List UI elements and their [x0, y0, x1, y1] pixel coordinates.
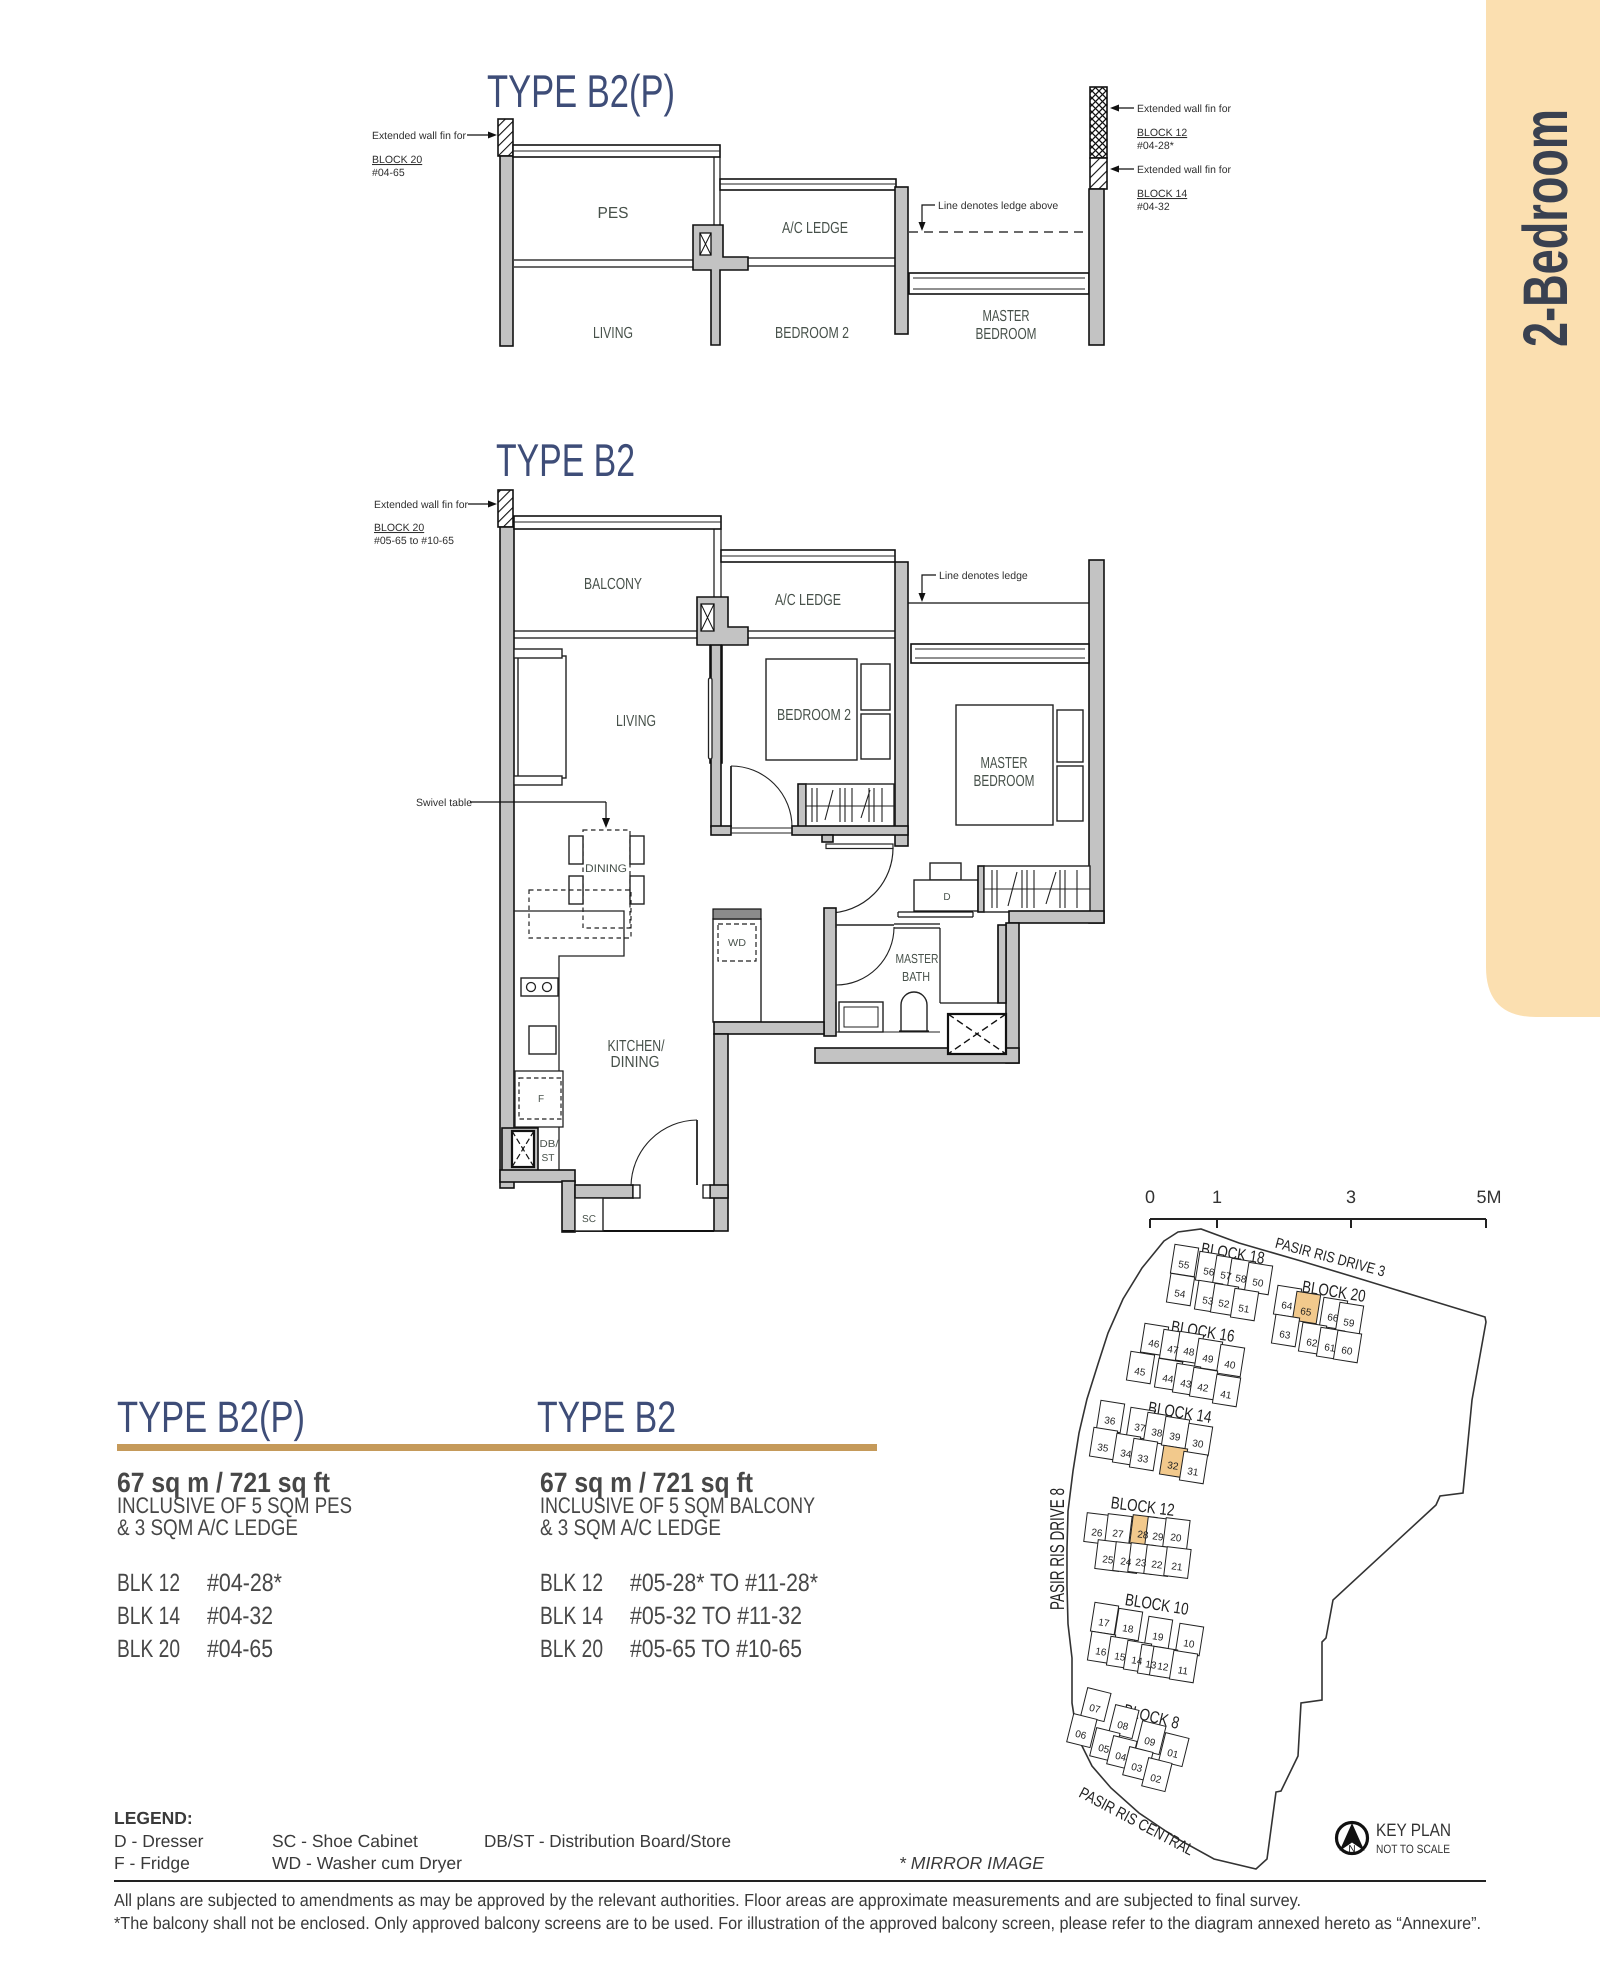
svg-text:D - Dresser: D - Dresser	[114, 1831, 204, 1851]
svg-text:27: 27	[1112, 1528, 1125, 1540]
svg-text:50: 50	[1251, 1277, 1264, 1290]
svg-text:A/C LEDGE: A/C LEDGE	[782, 220, 848, 237]
svg-text:Extended wall fin for: Extended wall fin for	[374, 499, 468, 511]
svg-text:F: F	[538, 1094, 544, 1105]
svg-text:18: 18	[1121, 1623, 1134, 1636]
svg-text:60: 60	[1340, 1345, 1353, 1358]
svg-text:58: 58	[1234, 1273, 1247, 1286]
svg-text:54: 54	[1173, 1288, 1186, 1301]
svg-text:63: 63	[1278, 1329, 1291, 1342]
svg-text:Extended wall fin for: Extended wall fin for	[1137, 164, 1231, 176]
svg-text:62: 62	[1305, 1337, 1318, 1350]
svg-text:LIVING: LIVING	[616, 713, 656, 730]
svg-text:#04-65: #04-65	[372, 167, 405, 179]
svg-text:WD: WD	[728, 938, 746, 949]
svg-text:NOT TO SCALE: NOT TO SCALE	[1376, 1842, 1450, 1856]
svg-text:37: 37	[1133, 1422, 1146, 1435]
svg-text:& 3 SQM A/C LEDGE: & 3 SQM A/C LEDGE	[540, 1515, 721, 1540]
svg-text:WD - Washer cum Dryer: WD - Washer cum Dryer	[272, 1853, 462, 1873]
svg-text:29: 29	[1152, 1531, 1165, 1543]
svg-text:53: 53	[1201, 1295, 1214, 1308]
svg-text:DINING: DINING	[585, 863, 627, 875]
svg-text:57: 57	[1219, 1270, 1232, 1283]
svg-text:51: 51	[1237, 1303, 1250, 1316]
svg-text:#04-28*: #04-28*	[1137, 140, 1174, 152]
svg-text:BLOCK 20: BLOCK 20	[374, 522, 424, 534]
svg-text:66: 66	[1326, 1312, 1339, 1325]
svg-text:D: D	[943, 892, 950, 903]
svg-text:64: 64	[1280, 1300, 1293, 1313]
svg-text:SC - Shoe Cabinet: SC - Shoe Cabinet	[272, 1831, 418, 1851]
svg-text:47: 47	[1166, 1344, 1179, 1357]
svg-text:48: 48	[1182, 1346, 1195, 1359]
svg-text:39: 39	[1168, 1431, 1181, 1444]
svg-text:PASIR RIS CENTRAL: PASIR RIS CENTRAL	[1076, 1785, 1196, 1860]
svg-text:12: 12	[1156, 1661, 1169, 1674]
svg-text:DB/: DB/	[540, 1139, 559, 1150]
svg-text:TYPE B2(P): TYPE B2(P)	[117, 1393, 305, 1442]
svg-text:15: 15	[1113, 1651, 1126, 1664]
svg-text:*The balcony shall not be encl: *The balcony shall not be enclosed. Only…	[114, 1913, 1481, 1933]
svg-text:MASTER: MASTER	[896, 951, 939, 966]
svg-text:BALCONY: BALCONY	[584, 576, 642, 593]
svg-text:BEDROOM 2: BEDROOM 2	[777, 707, 851, 724]
svg-text:BLK 14: BLK 14	[540, 1602, 603, 1630]
svg-text:20: 20	[1170, 1532, 1183, 1544]
svg-text:#05-28* TO #11-28*: #05-28* TO #11-28*	[630, 1569, 818, 1597]
svg-text:#05-65 to #10-65: #05-65 to #10-65	[374, 535, 454, 547]
svg-text:TYPE B2: TYPE B2	[537, 1393, 676, 1442]
svg-text:40: 40	[1223, 1359, 1236, 1372]
svg-text:Line denotes ledge: Line denotes ledge	[939, 570, 1028, 582]
svg-text:1: 1	[1212, 1187, 1222, 1207]
svg-text:56: 56	[1202, 1266, 1215, 1279]
svg-text:A/C LEDGE: A/C LEDGE	[775, 592, 841, 609]
svg-text:59: 59	[1342, 1317, 1355, 1330]
svg-text:Extended wall fin for: Extended wall fin for	[1137, 103, 1231, 115]
svg-text:BLK 14: BLK 14	[117, 1602, 180, 1630]
svg-text:#04-65: #04-65	[207, 1635, 273, 1663]
svg-text:5M: 5M	[1476, 1187, 1501, 1207]
svg-text:PASIR RIS DRIVE 8: PASIR RIS DRIVE 8	[1047, 1488, 1069, 1610]
svg-text:11: 11	[1177, 1665, 1189, 1678]
svg-text:TYPE B2: TYPE B2	[496, 434, 635, 486]
svg-text:F - Fridge: F - Fridge	[114, 1853, 190, 1873]
svg-text:#05-65 TO #10-65: #05-65 TO #10-65	[630, 1635, 802, 1663]
svg-text:KEY PLAN: KEY PLAN	[1376, 1820, 1451, 1840]
svg-text:DB/ST - Distribution Board/Sto: DB/ST - Distribution Board/Store	[484, 1831, 731, 1851]
svg-text:#04-32: #04-32	[207, 1602, 273, 1630]
svg-text:MASTER: MASTER	[981, 755, 1028, 772]
svg-text:BLOCK 14: BLOCK 14	[1137, 188, 1187, 200]
svg-text:65: 65	[1299, 1306, 1312, 1319]
svg-text:43: 43	[1179, 1378, 1192, 1391]
svg-text:31: 31	[1186, 1466, 1199, 1479]
svg-text:BLK 20: BLK 20	[540, 1635, 603, 1663]
svg-text:BEDROOM 2: BEDROOM 2	[775, 325, 849, 342]
svg-text:KITCHEN/: KITCHEN/	[608, 1038, 665, 1055]
svg-text:21: 21	[1171, 1561, 1184, 1573]
svg-text:0: 0	[1145, 1187, 1155, 1207]
svg-text:41: 41	[1219, 1389, 1232, 1402]
svg-text:52: 52	[1217, 1298, 1230, 1311]
svg-text:BLOCK 12: BLOCK 12	[1137, 127, 1187, 139]
svg-text:17: 17	[1097, 1617, 1110, 1630]
svg-text:BATH: BATH	[902, 969, 930, 984]
svg-text:28: 28	[1137, 1529, 1150, 1541]
svg-text:2-Bedroom: 2-Bedroom	[1511, 109, 1581, 347]
svg-text:23: 23	[1135, 1557, 1148, 1569]
svg-text:#04-32: #04-32	[1137, 201, 1170, 213]
svg-text:46: 46	[1147, 1338, 1160, 1351]
svg-text:Extended wall fin for: Extended wall fin for	[372, 130, 466, 142]
svg-text:26: 26	[1091, 1527, 1104, 1539]
svg-text:42: 42	[1196, 1382, 1209, 1395]
svg-text:PES: PES	[598, 205, 629, 222]
svg-text:N: N	[1348, 1844, 1355, 1855]
svg-text:BLK 12: BLK 12	[117, 1569, 180, 1597]
svg-text:35: 35	[1096, 1442, 1109, 1455]
svg-text:#04-28*: #04-28*	[207, 1569, 282, 1597]
svg-text:All plans are subjected to ame: All plans are subjected to amendments as…	[114, 1890, 1301, 1910]
svg-text:SC: SC	[582, 1214, 596, 1225]
svg-text:& 3 SQM A/C LEDGE: & 3 SQM A/C LEDGE	[117, 1515, 298, 1540]
svg-text:55: 55	[1177, 1259, 1190, 1272]
svg-text:DINING: DINING	[611, 1054, 660, 1071]
svg-text:38: 38	[1150, 1427, 1163, 1440]
svg-text:44: 44	[1161, 1373, 1174, 1386]
svg-text:19: 19	[1151, 1631, 1164, 1644]
svg-text:BEDROOM: BEDROOM	[974, 773, 1035, 790]
svg-text:Swivel table: Swivel table	[416, 797, 472, 809]
svg-text:#05-32 TO #11-32: #05-32 TO #11-32	[630, 1602, 802, 1630]
svg-text:16: 16	[1094, 1646, 1107, 1659]
svg-text:Line denotes ledge above: Line denotes ledge above	[938, 200, 1058, 212]
svg-text:10: 10	[1182, 1638, 1195, 1651]
svg-text:BLOCK 20: BLOCK 20	[372, 154, 422, 166]
svg-text:3: 3	[1346, 1187, 1356, 1207]
svg-text:BLK 12: BLK 12	[540, 1569, 603, 1597]
svg-text:BEDROOM: BEDROOM	[976, 326, 1037, 343]
svg-text:32: 32	[1166, 1460, 1179, 1473]
svg-text:LEGEND:: LEGEND:	[114, 1808, 193, 1828]
svg-text:14: 14	[1130, 1655, 1143, 1668]
svg-text:61: 61	[1323, 1342, 1336, 1355]
svg-text:24: 24	[1120, 1556, 1133, 1568]
svg-text:34: 34	[1119, 1448, 1132, 1461]
svg-text:MASTER: MASTER	[983, 308, 1030, 325]
svg-text:30: 30	[1191, 1438, 1204, 1451]
svg-text:22: 22	[1151, 1559, 1164, 1571]
svg-text:33: 33	[1136, 1453, 1149, 1466]
svg-text:49: 49	[1201, 1353, 1214, 1366]
svg-text:13: 13	[1144, 1659, 1157, 1672]
svg-text:ST: ST	[542, 1153, 555, 1164]
svg-text:BLK 20: BLK 20	[117, 1635, 180, 1663]
svg-text:TYPE B2(P): TYPE B2(P)	[487, 65, 675, 117]
svg-text:LIVING: LIVING	[593, 325, 633, 342]
svg-text:* MIRROR IMAGE: * MIRROR IMAGE	[899, 1853, 1044, 1873]
svg-text:25: 25	[1102, 1554, 1115, 1566]
svg-text:45: 45	[1133, 1366, 1146, 1379]
svg-text:36: 36	[1103, 1415, 1116, 1428]
